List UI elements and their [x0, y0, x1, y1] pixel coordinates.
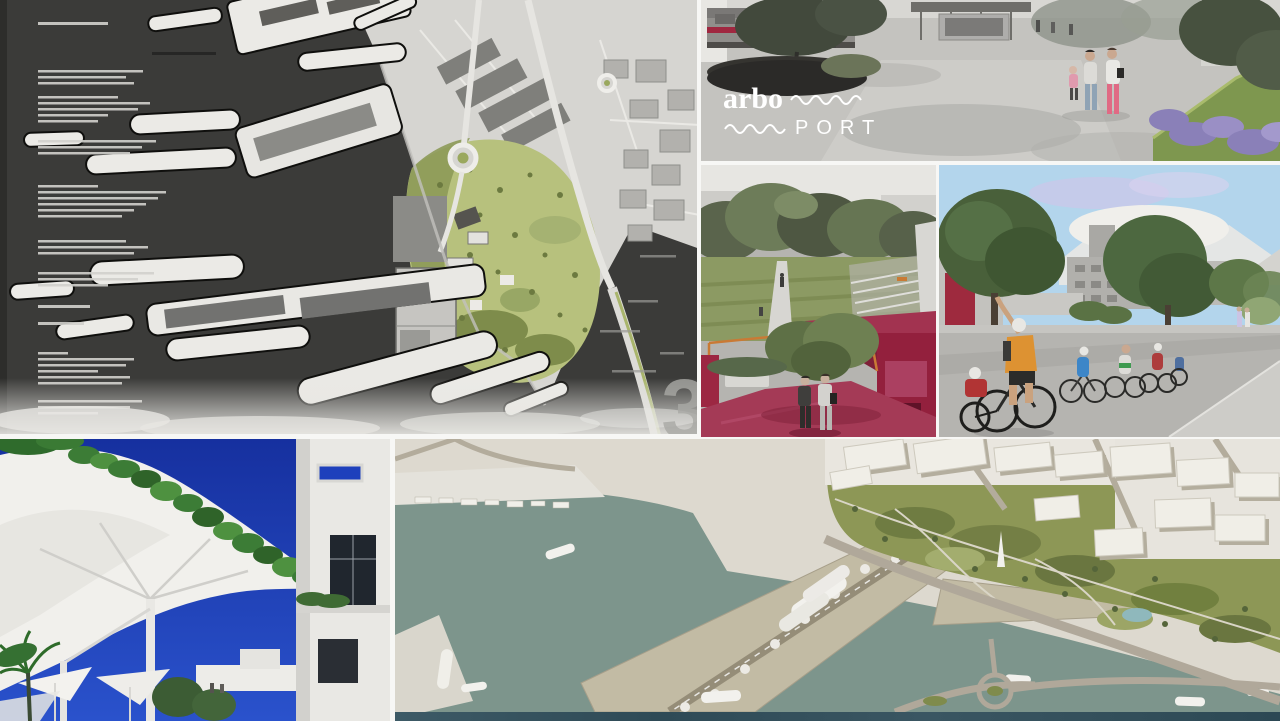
park-path-scene: [701, 165, 936, 437]
pond: [1122, 608, 1152, 622]
right-building: [296, 439, 390, 721]
cycleway-scene: [939, 165, 1280, 437]
grunge-fade: [0, 378, 700, 437]
park-path-render-panel: [701, 165, 936, 437]
logo-secondary-text: PORT: [795, 118, 882, 138]
sheet-number: 3: [661, 367, 700, 437]
canopy-render-panel: [0, 439, 390, 721]
site-plan-drawing: [0, 0, 700, 437]
promenade-render-panel: arbo PORT: [701, 0, 1280, 161]
wave-icon: [723, 122, 789, 134]
logo-primary-text: arbo: [723, 84, 783, 114]
cycleway-render-panel: [939, 165, 1280, 437]
arbo-port-logo: arbo PORT: [723, 84, 882, 138]
wave-icon: [789, 93, 869, 105]
bottom-image-strip: [395, 712, 1280, 721]
site-plan-panel: 3: [0, 0, 700, 437]
canopy-scene: [0, 439, 390, 721]
aerial-scene: [395, 439, 1280, 712]
aerial-render-panel: [395, 439, 1280, 712]
